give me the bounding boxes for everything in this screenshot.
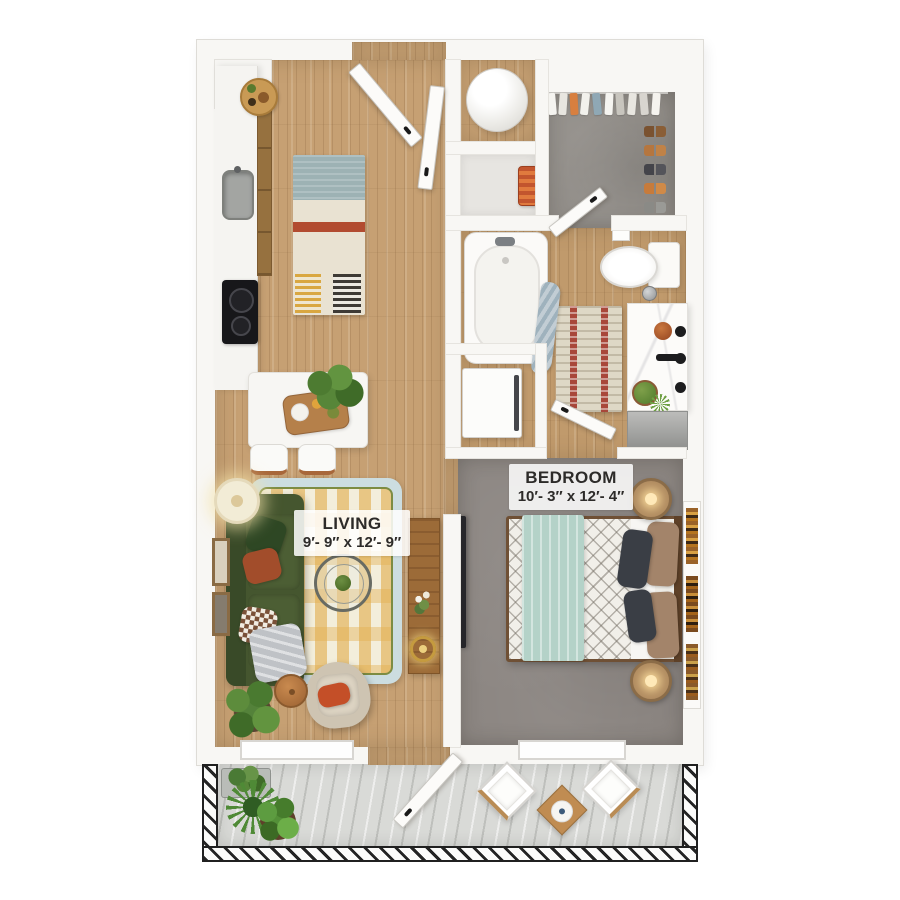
shoe-pair: [644, 145, 666, 156]
patio-tray: [546, 796, 577, 827]
toilet-bowl: [600, 246, 658, 288]
runner-fringe-dark: [333, 274, 361, 313]
water-heater: [466, 68, 528, 132]
balcony-plant-leafy: [252, 796, 302, 846]
cooktop: [222, 280, 258, 344]
faucet-knob: [675, 353, 686, 364]
lamp-glow: [645, 493, 657, 505]
entry-threshold: [352, 42, 446, 60]
shirt: [558, 93, 568, 116]
floor-plant: [220, 680, 284, 744]
runner-section-cream2: [293, 232, 365, 272]
cutting-board: [240, 78, 278, 116]
nightstand-lamp-bottom: [630, 660, 672, 702]
kitchen-cabinet-face: [257, 104, 272, 276]
throw-blanket: [248, 622, 309, 684]
shoe-pair: [644, 183, 666, 194]
bed-throw-mint: [522, 515, 584, 661]
living-label-name: LIVING: [300, 514, 404, 534]
trash-bin: [642, 286, 657, 301]
washer-door-seam: [514, 375, 519, 431]
wall-laundry-top: [446, 344, 546, 354]
wall-laundry-right: [536, 344, 546, 458]
runner-section-fringe: [293, 272, 365, 315]
wall-closet-left: [536, 60, 548, 228]
closet-shoe-rack: [644, 126, 670, 226]
console-ring-lamp: [410, 636, 436, 662]
wall-bath-top-left: [446, 216, 558, 230]
bar-stool-1: [250, 444, 288, 475]
vanity-counter: [627, 303, 688, 411]
shirt: [569, 93, 578, 115]
lamp-glow: [645, 675, 657, 687]
console-flowers: [412, 588, 434, 616]
wall-bath-top-right: [612, 216, 686, 230]
living-label: LIVING 9′- 9″ x 12′- 9″: [294, 510, 410, 556]
food-item-bread: [258, 92, 269, 103]
nightstand-lamp-top: [630, 478, 672, 520]
books: [686, 644, 698, 700]
bedroom-label: BEDROOM 10′- 3″ x 12′- 4″: [509, 464, 633, 510]
shirt: [580, 93, 590, 116]
vanity-hamper: [627, 411, 688, 450]
kitchen-sink: [222, 170, 254, 220]
balcony-door-threshold: [368, 747, 450, 765]
wall-living-bedroom: [444, 515, 460, 747]
flush-plate: [612, 230, 630, 241]
lamp-center: [231, 495, 243, 507]
floor-lamp: [214, 478, 260, 524]
door-handle: [404, 808, 413, 817]
shoe-pair: [644, 202, 666, 213]
bar-stool-2: [298, 444, 336, 475]
balcony-railing-bottom: [202, 846, 698, 862]
bathroom-rug: [556, 306, 622, 412]
books: [686, 508, 698, 564]
tub-faucet: [495, 237, 515, 246]
faucet-knob: [675, 382, 686, 393]
wall-bedroom-top-right: [618, 448, 686, 458]
shirt: [639, 93, 649, 116]
chair-cushion: [591, 769, 631, 809]
rug-red-stripe: [601, 306, 608, 412]
ring-lamp-bulb: [419, 645, 427, 653]
shirt: [604, 93, 613, 115]
floor-plan-canvas: BEDROOM 10′- 3″ x 12′- 4″ LIVING 9′- 9″ …: [0, 0, 900, 900]
bookshelf: [684, 502, 700, 708]
wall-bedroom-top-left: [446, 448, 546, 458]
shoe-pair: [644, 164, 666, 175]
door-handle: [589, 195, 598, 203]
runner-section-blue: [293, 155, 365, 200]
faucet-knob: [675, 326, 686, 337]
plate: [290, 402, 310, 422]
coffee-table-plant: [335, 575, 351, 591]
shirt: [615, 93, 625, 116]
bedroom-label-dimensions: 10′- 3″ x 12′- 4″: [515, 488, 627, 506]
side-table-knot: [289, 689, 295, 695]
wall-whc-bottom: [446, 142, 548, 154]
island-plant: [300, 364, 366, 412]
runner-fringe-gold: [295, 274, 321, 313]
living-label-dimensions: 9′- 9″ x 12′- 9″: [300, 534, 404, 552]
shirt: [592, 93, 602, 116]
door-handle: [424, 167, 429, 176]
bedroom-label-name: BEDROOM: [515, 468, 627, 488]
bedroom-window: [518, 740, 626, 760]
books: [686, 576, 698, 632]
vanity-bowl: [654, 322, 672, 340]
living-window: [240, 740, 354, 760]
shoe-pair: [644, 126, 666, 137]
kitchen-runner-rug: [293, 155, 365, 315]
closet-hanging-clothes: [548, 90, 670, 120]
coffee-table: [314, 554, 372, 612]
tub-drain: [502, 257, 509, 264]
chair-cushion: [487, 771, 527, 811]
shirt: [651, 93, 661, 116]
shirt: [627, 93, 637, 116]
tray-cup: [558, 807, 566, 815]
wall-art-2: [212, 592, 230, 636]
food-item: [248, 98, 256, 106]
runner-section-cream: [293, 200, 365, 222]
burner-small: [231, 316, 251, 336]
food-item-olive: [247, 84, 256, 93]
door-handle: [560, 406, 569, 413]
towel-stack: [518, 166, 538, 206]
burner-large: [229, 288, 254, 313]
runner-section-red: [293, 222, 365, 232]
washing-machine: [462, 368, 522, 438]
wall-art-1: [212, 538, 230, 586]
door-handle: [403, 126, 412, 135]
sink-faucet: [234, 166, 241, 173]
rug-red-stripe: [570, 306, 577, 412]
shirt: [547, 93, 557, 116]
wall-hall-bath: [446, 60, 460, 458]
